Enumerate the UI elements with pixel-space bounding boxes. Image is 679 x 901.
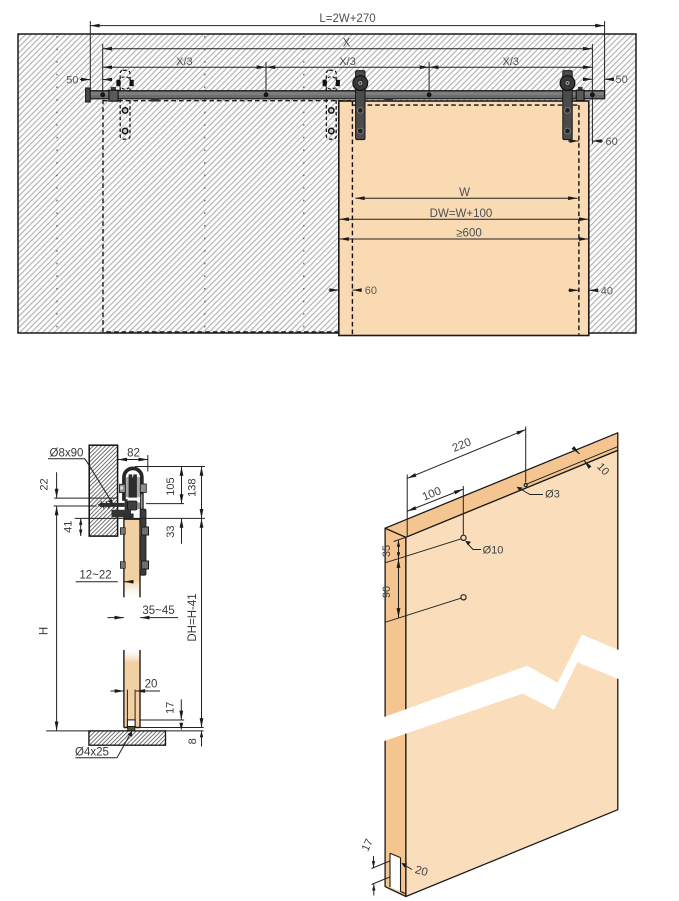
svg-text:Ø4x25: Ø4x25 <box>75 747 109 759</box>
svg-text:Ø10: Ø10 <box>483 545 504 557</box>
svg-text:50: 50 <box>616 74 628 86</box>
svg-text:Ø3: Ø3 <box>545 489 560 501</box>
svg-text:DH=H-41: DH=H-41 <box>187 593 199 641</box>
svg-text:105: 105 <box>165 477 177 495</box>
svg-text:41: 41 <box>63 521 75 533</box>
svg-text:40: 40 <box>601 285 613 297</box>
svg-text:X/3: X/3 <box>503 56 520 68</box>
svg-text:L=2W+270: L=2W+270 <box>319 13 375 25</box>
svg-text:H: H <box>39 627 51 635</box>
svg-text:60: 60 <box>365 285 377 297</box>
svg-text:8: 8 <box>187 738 199 744</box>
svg-text:50: 50 <box>66 74 78 86</box>
svg-text:Ø8x90: Ø8x90 <box>50 448 84 460</box>
svg-text:33: 33 <box>165 525 177 537</box>
svg-text:100: 100 <box>421 485 443 503</box>
svg-text:X/3: X/3 <box>176 56 193 68</box>
svg-text:17: 17 <box>165 702 177 714</box>
svg-text:82: 82 <box>127 447 140 459</box>
svg-text:20: 20 <box>145 679 158 691</box>
svg-text:60: 60 <box>606 136 618 148</box>
svg-text:X/3: X/3 <box>339 56 356 68</box>
svg-text:X: X <box>343 37 351 49</box>
svg-text:220: 220 <box>451 436 473 454</box>
svg-text:35: 35 <box>381 545 393 557</box>
svg-text:DW=W+100: DW=W+100 <box>430 208 493 220</box>
svg-text:90: 90 <box>381 586 393 598</box>
svg-text:35~45: 35~45 <box>142 605 174 617</box>
svg-text:138: 138 <box>186 479 198 497</box>
svg-text:12~22: 12~22 <box>79 570 111 582</box>
svg-text:17: 17 <box>360 837 376 853</box>
svg-text:22: 22 <box>39 478 51 490</box>
svg-text:≥600: ≥600 <box>456 228 482 240</box>
svg-text:W: W <box>459 187 470 199</box>
